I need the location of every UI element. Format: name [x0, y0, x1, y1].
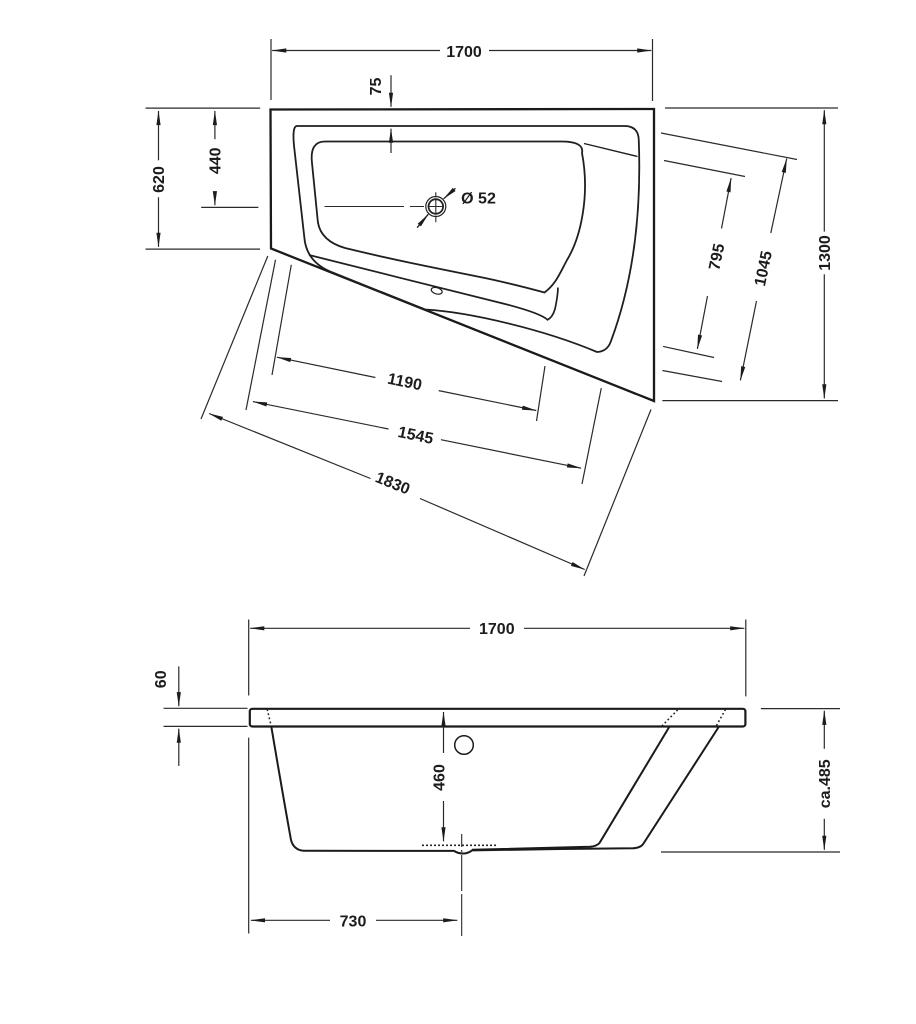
svg-text:1190: 1190: [386, 371, 424, 395]
svg-text:60: 60: [153, 670, 170, 688]
svg-text:ca.485: ca.485: [817, 759, 834, 808]
svg-text:1300: 1300: [817, 235, 834, 271]
svg-text:1545: 1545: [396, 424, 434, 448]
svg-text:1830: 1830: [373, 469, 412, 498]
svg-text:730: 730: [340, 913, 367, 930]
svg-text:1700: 1700: [446, 44, 482, 61]
svg-text:Ø 52: Ø 52: [461, 191, 496, 208]
svg-text:440: 440: [207, 147, 224, 174]
svg-text:1045: 1045: [752, 249, 776, 287]
svg-text:75: 75: [368, 78, 385, 96]
svg-text:795: 795: [706, 242, 728, 272]
svg-text:460: 460: [431, 764, 448, 791]
svg-text:620: 620: [151, 166, 168, 193]
svg-text:1700: 1700: [479, 621, 515, 638]
